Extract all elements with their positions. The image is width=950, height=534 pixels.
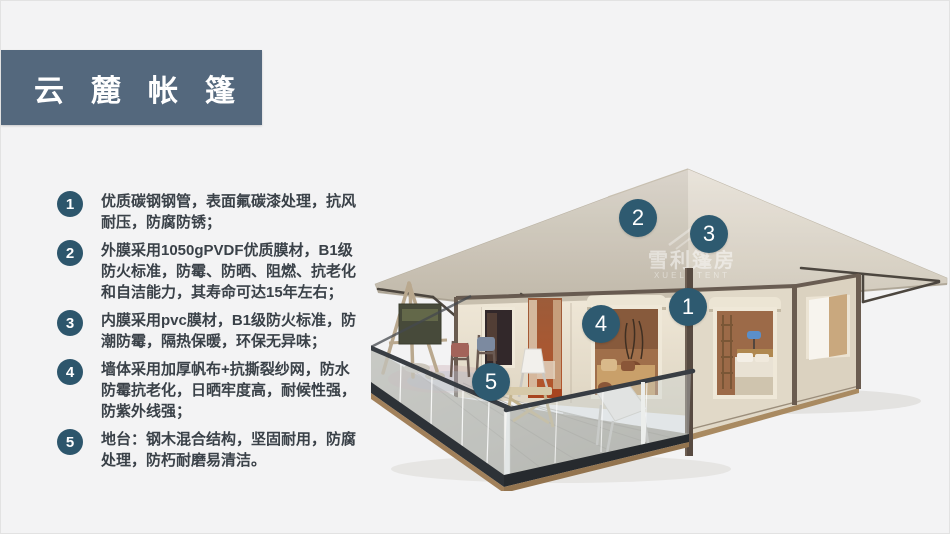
callout-badge-2: 2 — [619, 199, 657, 237]
feature-item-5: 5 地台：钢木混合结构，坚固耐用，防腐处理，防朽耐磨易清洁。 — [57, 429, 377, 471]
feature-text: 外膜采用1050gPVDF优质膜材，B1级防火标准，防霉、防晒、阻燃、抗老化和自… — [101, 240, 361, 303]
tent-roof — [375, 169, 947, 301]
feature-number-badge: 1 — [57, 191, 83, 217]
feature-text: 优质碳钢钢管，表面氟碳漆处理，抗风耐压，防腐防锈； — [101, 191, 361, 233]
page-title-banner: 云麓帐篷 — [1, 50, 262, 125]
feature-number-badge: 5 — [57, 429, 83, 455]
side-wall — [796, 275, 859, 405]
feature-item-1: 1 优质碳钢钢管，表面氟碳漆处理，抗风耐压，防腐防锈； — [57, 191, 377, 233]
feature-text: 墙体采用加厚帆布+抗撕裂纱网，防水防霉抗老化，日晒牢度高，耐候性强，防紫外线强； — [101, 359, 361, 422]
feature-item-4: 4 墙体采用加厚帆布+抗撕裂纱网，防水防霉抗老化，日晒牢度高，耐候性强，防紫外线… — [57, 359, 377, 422]
feature-text: 地台：钢木混合结构，坚固耐用，防腐处理，防朽耐磨易清洁。 — [101, 429, 361, 471]
callout-badge-4: 4 — [582, 305, 620, 343]
feature-list: 1 优质碳钢钢管，表面氟碳漆处理，抗风耐压，防腐防锈； 2 外膜采用1050gP… — [57, 191, 377, 478]
slide: 云麓帐篷 1 优质碳钢钢管，表面氟碳漆处理，抗风耐压，防腐防锈； 2 外膜采用1… — [0, 0, 950, 534]
feature-number-badge: 2 — [57, 240, 83, 266]
callout-badge-5: 5 — [472, 363, 510, 401]
tent-illustration: 雪利篷房 XUELI TENT — [371, 161, 950, 491]
feature-number-badge: 3 — [57, 310, 83, 336]
callout-badge-3: 3 — [690, 215, 728, 253]
page-title: 云麓帐篷 — [1, 66, 262, 110]
feature-text: 内膜采用pvc膜材，B1级防火标准，防潮防霉，隔热保暖，环保无异味； — [101, 310, 361, 352]
feature-number-badge: 4 — [57, 359, 83, 385]
feature-item-3: 3 内膜采用pvc膜材，B1级防火标准，防潮防霉，隔热保暖，环保无异味； — [57, 310, 377, 352]
callout-badge-1: 1 — [669, 288, 707, 326]
feature-item-2: 2 外膜采用1050gPVDF优质膜材，B1级防火标准，防霉、防晒、阻燃、抗老化… — [57, 240, 377, 303]
bedroom-window — [709, 297, 781, 399]
